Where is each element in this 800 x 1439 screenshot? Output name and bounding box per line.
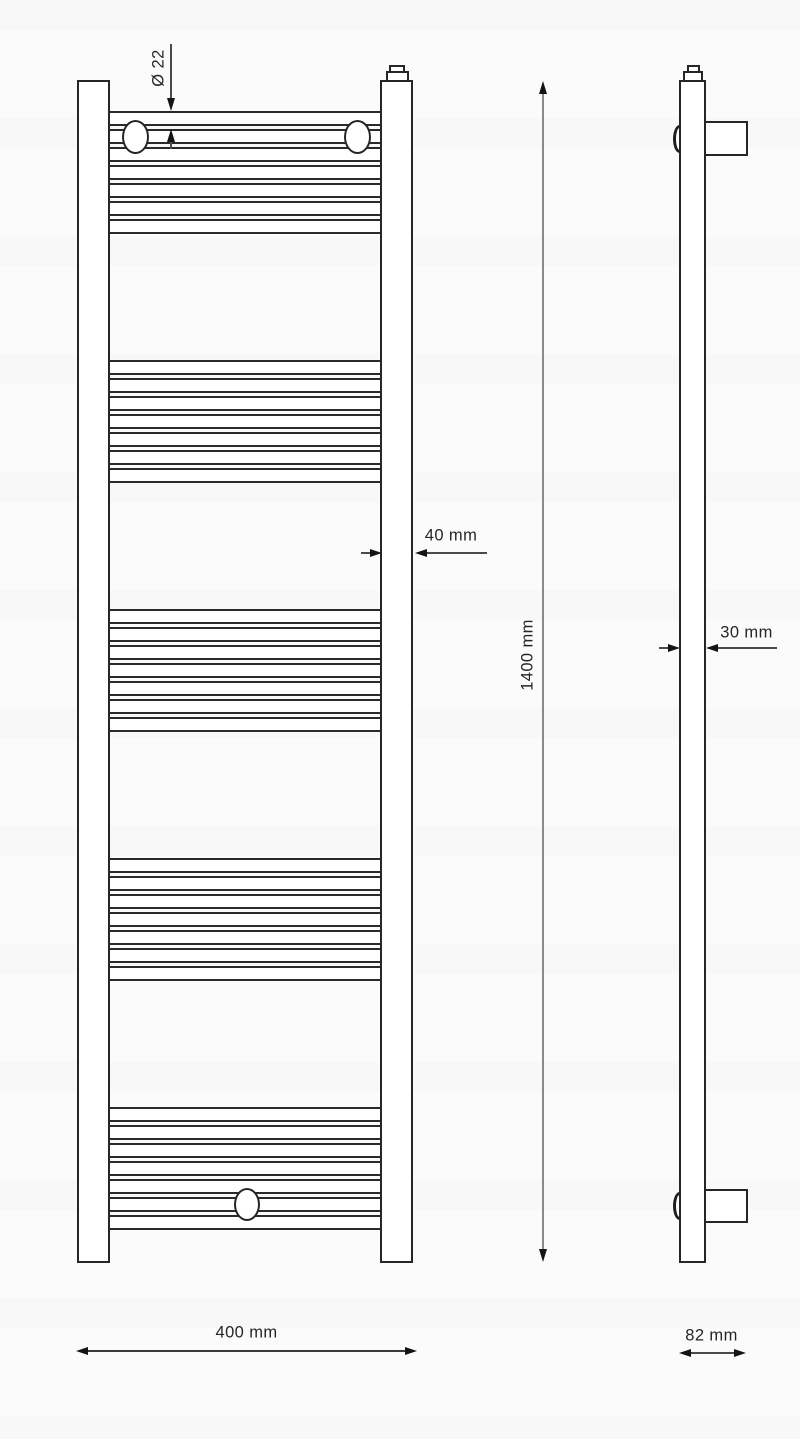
dim30-shaft-right (718, 647, 777, 649)
radiator-tube (108, 432, 384, 447)
radiator-tube (108, 1161, 384, 1176)
wall-plug-left (122, 120, 149, 154)
radiator-tube (108, 717, 384, 732)
dim40-arrow-left-icon (415, 549, 427, 557)
radiator-tube (108, 1143, 384, 1158)
height-arrow-up-icon (539, 81, 547, 94)
wall-bracket-bottom (701, 1189, 748, 1223)
diameter-arrow-down-icon (167, 98, 175, 111)
dim400-arrow-right-icon (405, 1347, 417, 1355)
total-width-label: 400 mm (215, 1324, 277, 1343)
radiator-tube (108, 378, 384, 393)
radiator-tube (108, 183, 384, 198)
radiator-tube (108, 201, 384, 216)
dim400-arrow-left-icon (76, 1347, 88, 1355)
dim400-shaft (88, 1350, 405, 1352)
air-vent-cap-top (389, 65, 405, 73)
technical-drawing-canvas: Ø 22 40 mm 1400 mm 30 mm 400 mm 82 mm (0, 0, 800, 1439)
diameter-dim-line (170, 44, 172, 99)
dim40-arrow-right-icon (370, 549, 382, 557)
height-arrow-down-icon (539, 1249, 547, 1262)
radiator-tube (108, 360, 384, 375)
radiator-tube (108, 627, 384, 642)
dim82-shaft (691, 1352, 735, 1354)
diameter-dim-tail (170, 141, 172, 149)
radiator-tube (108, 645, 384, 660)
right-collector-bar (380, 80, 413, 1263)
radiator-tube (108, 609, 384, 624)
radiator-tube (108, 468, 384, 483)
profile-depth-label: 30 mm (720, 624, 772, 643)
radiator-tube (108, 165, 384, 180)
radiator-tube (108, 912, 384, 927)
total-height-label: 1400 mm (518, 619, 537, 691)
radiator-tube (108, 1125, 384, 1140)
dim82-arrow-right-icon (734, 1349, 746, 1357)
side-vent-cap-top (687, 65, 700, 73)
wall-depth-label: 82 mm (685, 1327, 737, 1346)
radiator-tube (108, 663, 384, 678)
radiator-tube (108, 930, 384, 945)
radiator-tube (108, 147, 384, 162)
dim40-shaft-right (427, 552, 487, 554)
radiator-tube (108, 948, 384, 963)
radiator-tube (108, 966, 384, 981)
wall-bracket-top (701, 121, 748, 156)
dim82-arrow-left-icon (679, 1349, 691, 1357)
radiator-tube (108, 876, 384, 891)
radiator-tube (108, 894, 384, 909)
radiator-tube (108, 396, 384, 411)
radiator-tube (108, 414, 384, 429)
left-collector-bar (77, 80, 110, 1263)
side-profile-bar (679, 80, 706, 1263)
tube-diameter-label: Ø 22 (150, 49, 169, 86)
radiator-tube (108, 858, 384, 873)
radiator-tube (108, 1107, 384, 1122)
radiator-tube (108, 219, 384, 234)
radiator-tube (108, 450, 384, 465)
collector-width-label: 40 mm (425, 527, 477, 546)
bottom-valve-plug (234, 1188, 260, 1221)
height-dim-line (542, 93, 544, 1250)
radiator-tube (108, 681, 384, 696)
diameter-arrow-up-icon (167, 129, 175, 142)
dim30-arrow-right-icon (668, 644, 680, 652)
radiator-tube (108, 111, 384, 126)
radiator-tube (108, 699, 384, 714)
radiator-tube (108, 129, 384, 144)
wall-plug-right (344, 120, 371, 154)
dim30-arrow-left-icon (706, 644, 718, 652)
